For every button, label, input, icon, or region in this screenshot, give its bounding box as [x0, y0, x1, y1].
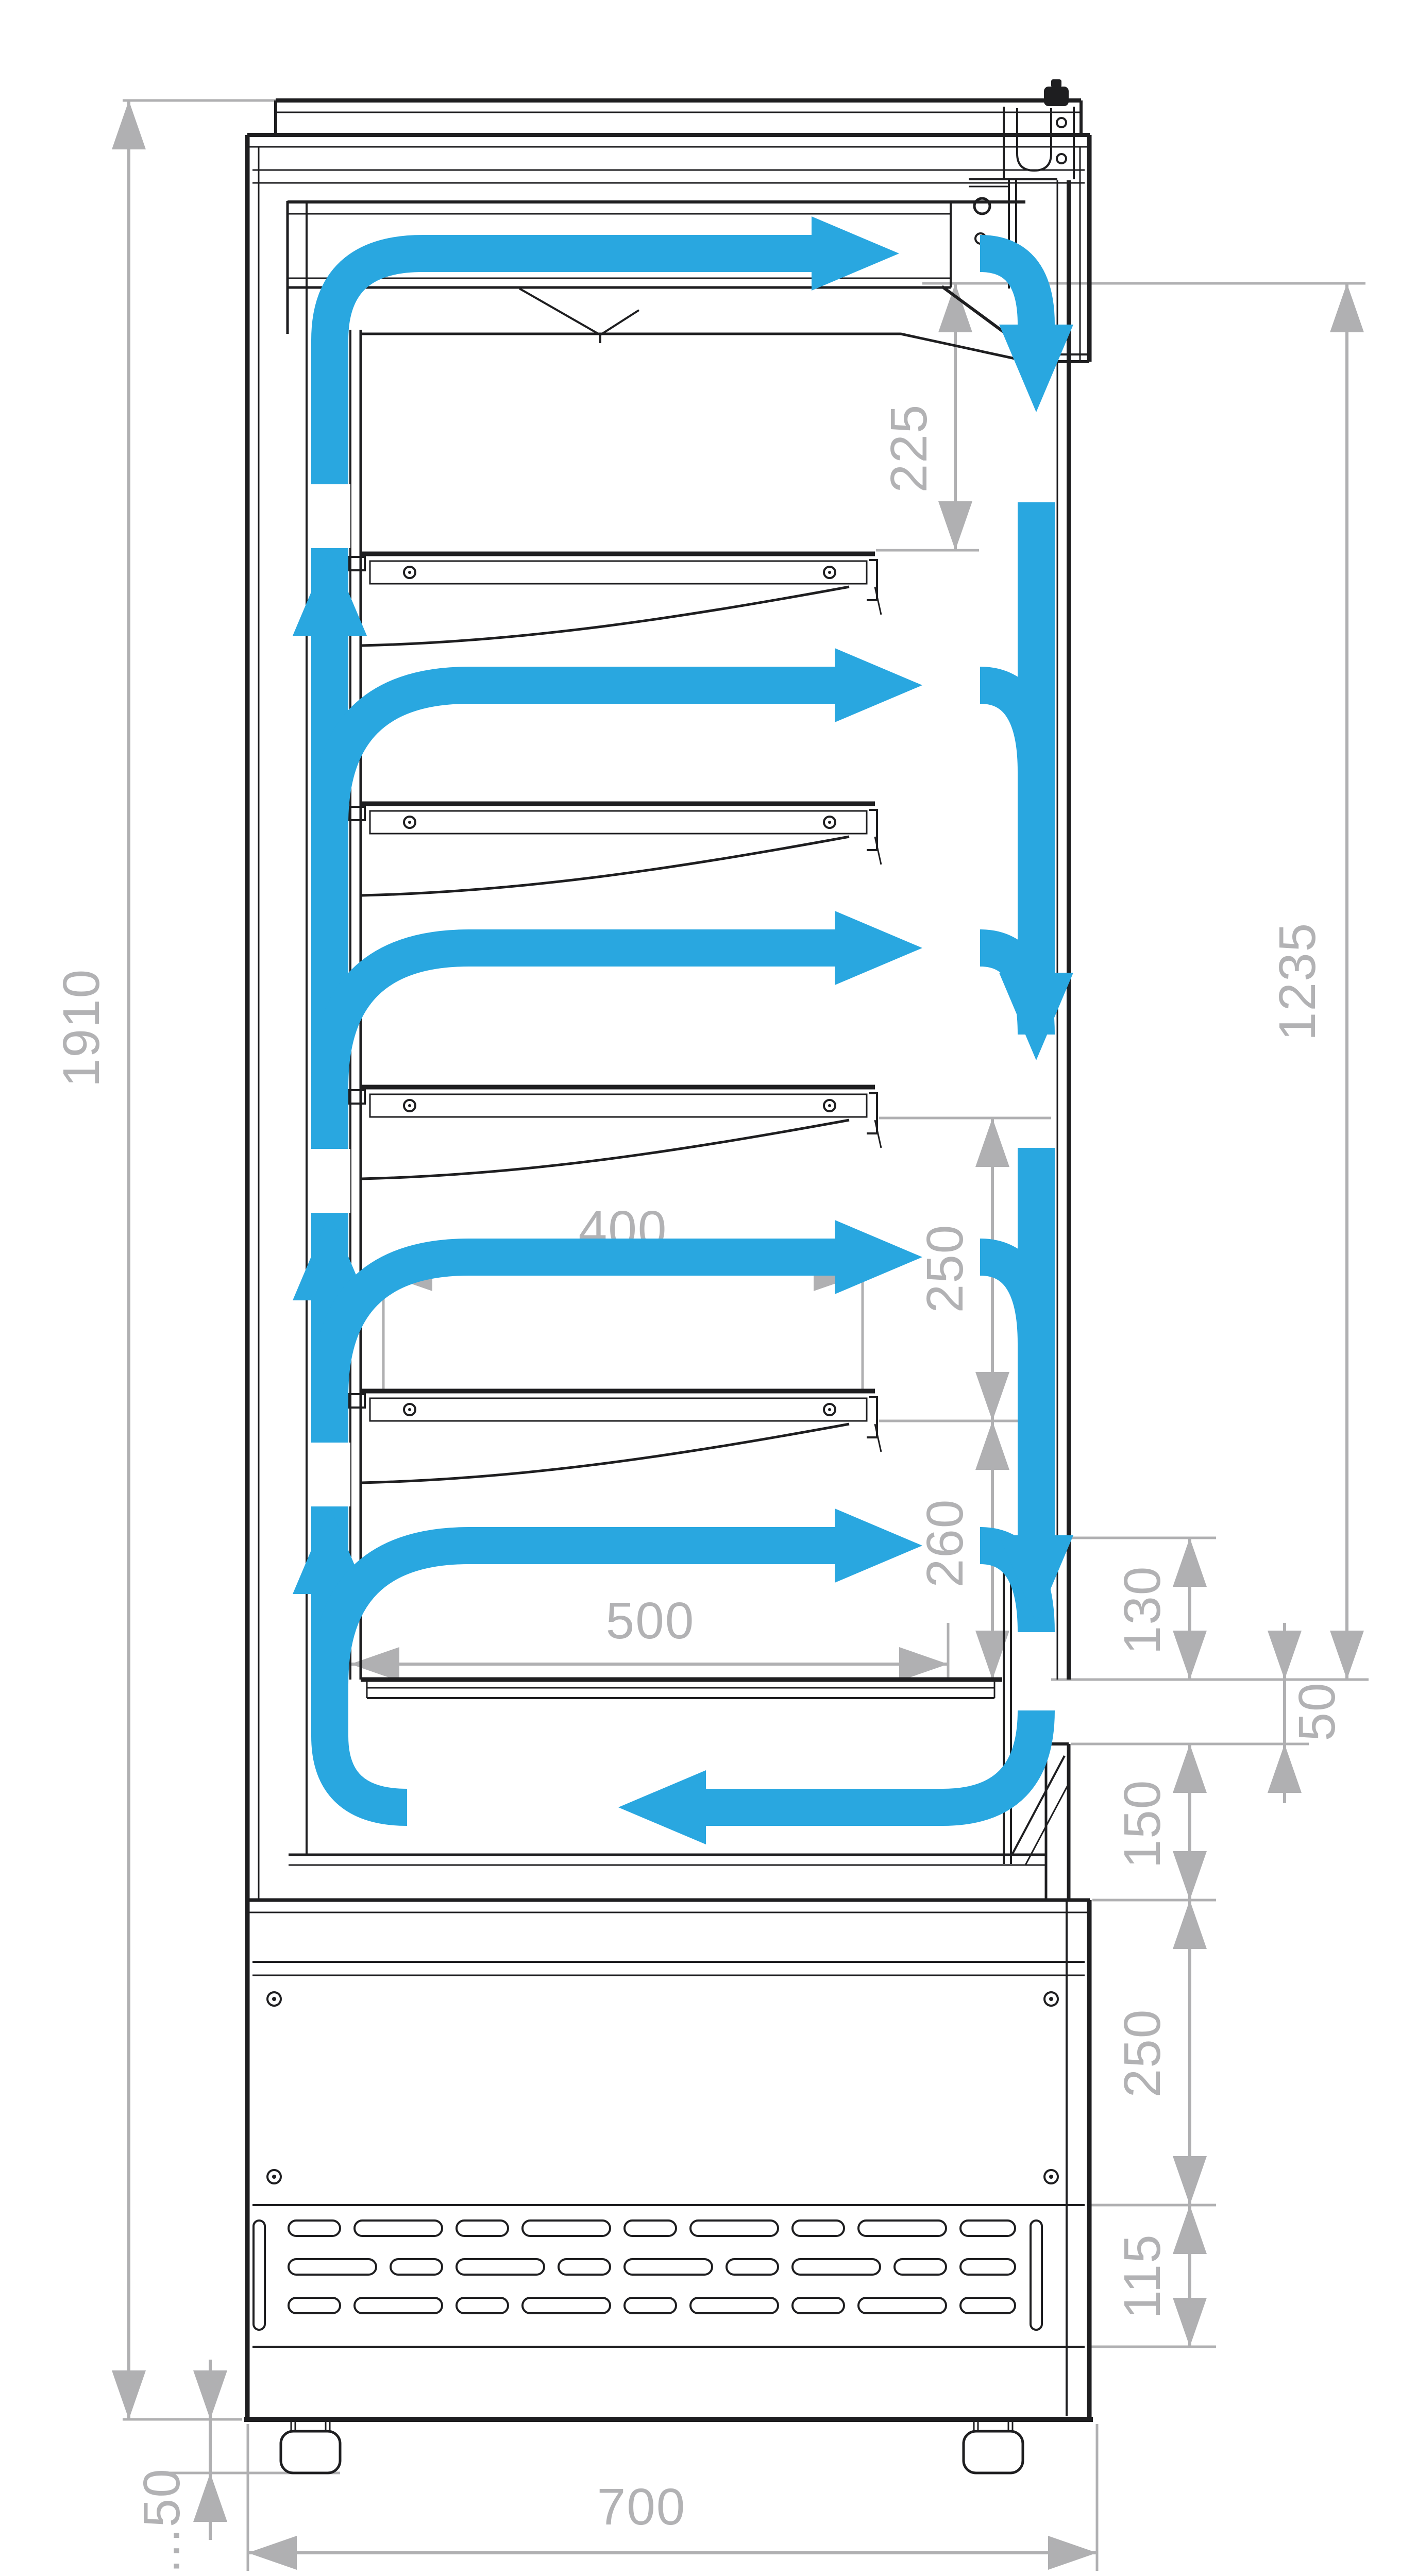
shelf-support-curve	[362, 587, 849, 646]
down-arrow-icon	[999, 325, 1073, 412]
shelf	[348, 554, 881, 646]
dim-label-150: 150	[1114, 1780, 1171, 1869]
shelf-support-curve	[362, 1120, 849, 1179]
dim-label-115: 115	[1114, 2233, 1171, 2318]
vent-grille	[254, 2221, 1042, 2330]
shelf-support-curve	[362, 837, 849, 895]
right-arrow-icon	[835, 1509, 922, 1583]
shelf-airflow	[330, 1257, 835, 1396]
return-airflow	[706, 1710, 1036, 1807]
up-arrow-icon	[293, 548, 367, 636]
shelf-airflow	[330, 948, 835, 1087]
corner-bracket	[1004, 79, 1074, 179]
dim-label-260: 260	[916, 1499, 974, 1588]
dim-label-1235: 1235	[1269, 922, 1326, 1041]
air-curtain	[980, 253, 1036, 325]
shelf	[348, 1391, 881, 1483]
shelf	[348, 804, 881, 895]
dim-label-50: 50	[1288, 1682, 1346, 1741]
dim-label-700: 700	[597, 2478, 686, 2536]
dim-label-500: 500	[606, 1592, 695, 1650]
dim-label-225: 225	[880, 404, 938, 493]
right-arrow-icon	[835, 1220, 922, 1294]
right-arrow-icon	[835, 648, 922, 722]
right-arrow-icon	[835, 911, 922, 985]
dim-label-feet: 30...50	[133, 2468, 191, 2576]
adjustable-foot	[281, 2420, 340, 2473]
left-arrow-icon	[618, 1770, 706, 1844]
dim-label-130: 130	[1114, 1566, 1171, 1655]
dim-label-overall-height: 1910	[53, 969, 110, 1087]
cooler-section-diagram: 1910 225 1235 250 260 130 50 150 250 115…	[0, 0, 1417, 2576]
shelf	[348, 1087, 881, 1179]
down-arrow-icon	[999, 973, 1073, 1060]
right-arrow-icon	[812, 216, 899, 291]
shelf-support-curve	[362, 1424, 849, 1483]
door-pivot	[1044, 87, 1069, 106]
technical-drawing-page: 1910 225 1235 250 260 130 50 150 250 115…	[0, 0, 1417, 2576]
dimension-arrowheads	[112, 100, 1364, 2570]
dim-label-250-base: 250	[1114, 2009, 1171, 2098]
adjustable-foot	[964, 2420, 1023, 2473]
dim-label-250-shelves: 250	[916, 1224, 974, 1313]
